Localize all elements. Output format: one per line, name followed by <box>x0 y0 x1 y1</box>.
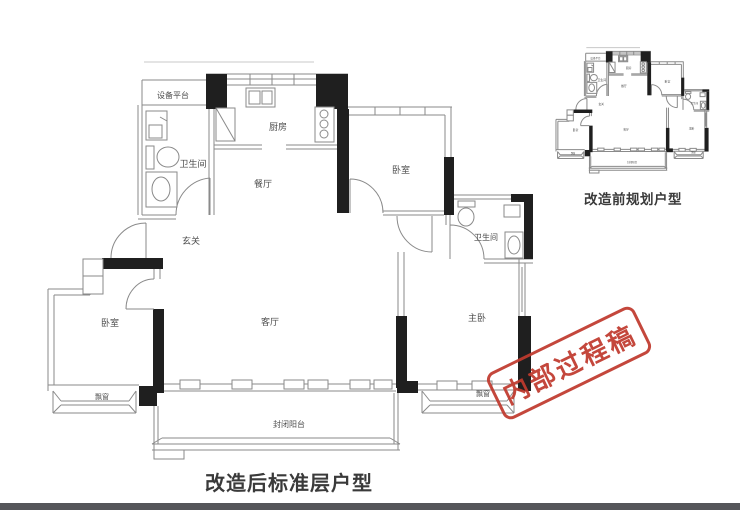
room-label-kitchen: 厨房 <box>269 121 287 132</box>
before-renovation-plan-mini <box>556 48 709 173</box>
room-label-bedroom-top: 卧室 <box>392 164 410 175</box>
room-label-equipment-platform: 设备平台 <box>157 90 189 100</box>
floorplan-canvas: 设备平台 卫生间 厨房 餐厅 卧室 卫生间 玄关 客厅 卧室 主卧 飘窗 飘窗 … <box>0 0 740 510</box>
room-label-master-bedroom: 主卧 <box>468 312 486 323</box>
room-label-bathroom-right: 卫生间 <box>474 232 498 242</box>
room-label-bay-window-left: 飘窗 <box>95 392 109 401</box>
room-label-dining: 餐厅 <box>254 178 272 189</box>
bottom-border-bar <box>0 503 740 510</box>
room-label-bathroom-left: 卫生间 <box>179 158 206 169</box>
floorplan-screenshot: 设备平台 卫生间 厨房 餐厅 卧室 卫生间 玄关 客厅 卧室 主卧 飘窗 飘窗 … <box>0 0 740 510</box>
after-plan-caption: 改造后标准层户型 <box>205 471 373 495</box>
after-renovation-plan: 设备平台 卫生间 厨房 餐厅 卧室 卫生间 玄关 客厅 卧室 主卧 飘窗 飘窗 … <box>48 62 533 459</box>
room-label-bay-window-right: 飘窗 <box>476 389 490 398</box>
room-label-living: 客厅 <box>261 316 279 327</box>
room-label-balcony: 封闭阳台 <box>273 419 305 429</box>
bay-windows <box>53 391 514 413</box>
before-plan-caption: 改造前规划户型 <box>584 191 682 207</box>
room-label-entry: 玄关 <box>182 235 200 246</box>
room-label-bedroom-left: 卧室 <box>101 317 119 328</box>
